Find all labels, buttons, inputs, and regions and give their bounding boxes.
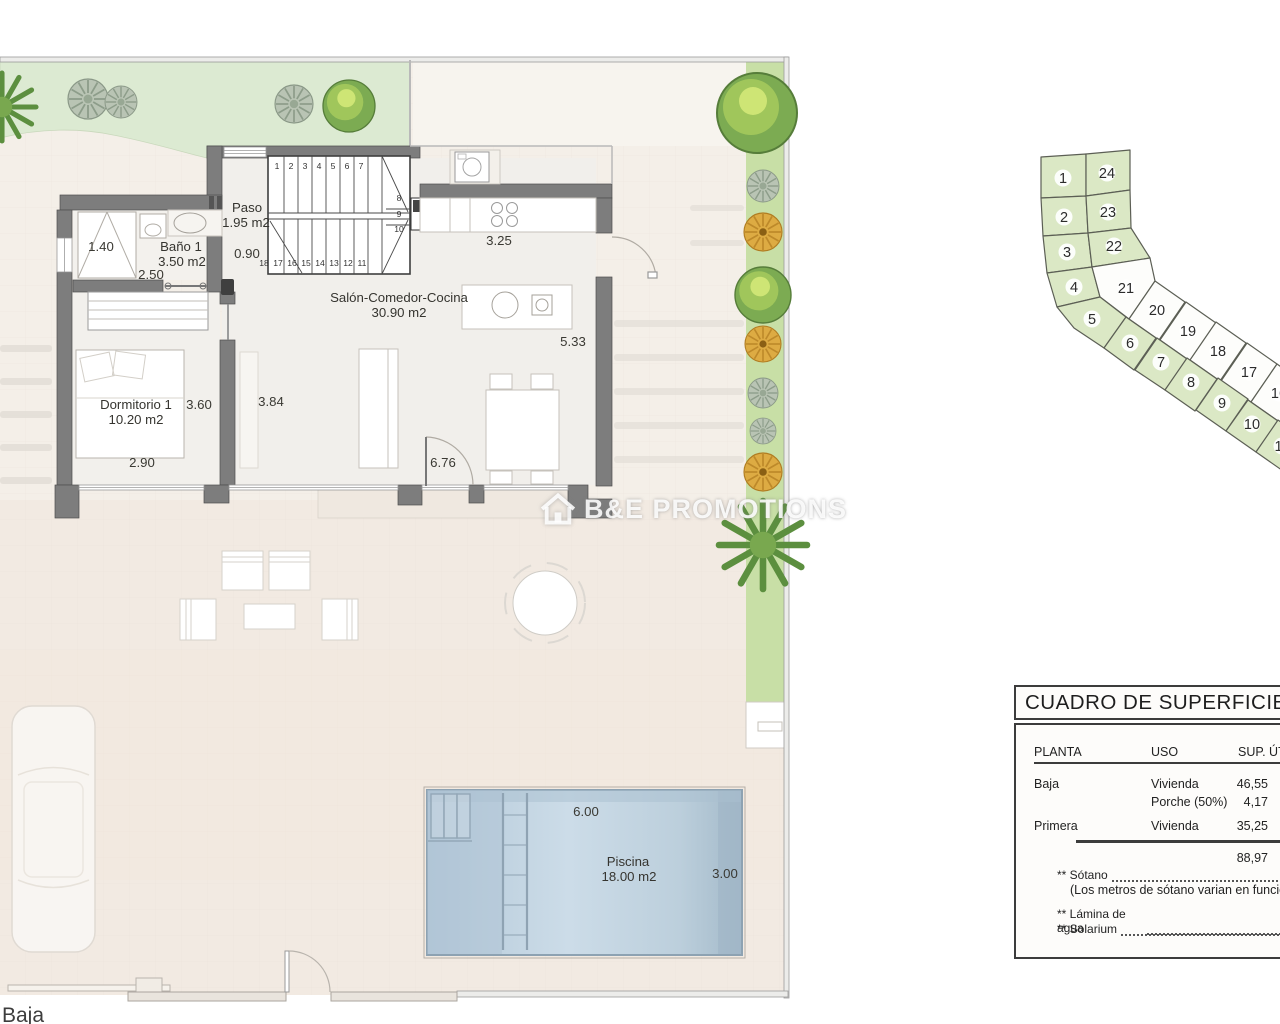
gate-leaf xyxy=(285,951,289,992)
shrub-icon xyxy=(748,378,778,408)
pool-name-label: Piscina xyxy=(607,854,650,869)
shrub-icon xyxy=(68,79,108,119)
stair-step-number: 17 xyxy=(273,258,283,268)
lot-number: 23 xyxy=(1100,205,1116,221)
stair-step-number: 8 xyxy=(397,193,402,203)
lot-number: 24 xyxy=(1099,166,1115,182)
lot-number: 8 xyxy=(1187,375,1195,391)
surface-row: PrimeraVivienda35,25 xyxy=(1016,819,1280,835)
pool-length-dim: 6.00 xyxy=(573,804,599,819)
lot-number: 20 xyxy=(1149,303,1165,319)
tv-sideboard xyxy=(240,352,258,468)
swimming-pool: 6.00 Piscina 18.00 m2 3.00 xyxy=(424,787,745,958)
site-plan-inset: 1242233224215201918171667891011 xyxy=(1041,150,1280,473)
stair-step-number: 13 xyxy=(329,258,339,268)
lot-number: 1 xyxy=(1059,171,1067,187)
stair-step-number: 2 xyxy=(289,161,294,171)
room-area-bano: 3.50 m2 xyxy=(158,254,206,269)
dining-chair xyxy=(490,374,512,389)
row-sup: 4,17 xyxy=(1202,795,1268,809)
row-planta: Primera xyxy=(1034,819,1078,833)
room-label-dormitorio: Dormitorio 1 xyxy=(100,397,172,412)
row-sup: 35,25 xyxy=(1202,819,1268,833)
dim-5-33: 5.33 xyxy=(560,334,586,349)
lot-number: 10 xyxy=(1244,417,1260,433)
tree-icon xyxy=(735,267,791,323)
note-sotano-detail: (Los metros de sótano varian en función … xyxy=(1070,883,1280,897)
stair-step-number: 1 xyxy=(275,161,280,171)
row-uso: Vivienda xyxy=(1151,777,1199,791)
dining-chair xyxy=(490,471,512,484)
lot-number: 21 xyxy=(1118,281,1134,297)
lot-number: 3 xyxy=(1063,245,1071,261)
lot-number: 22 xyxy=(1106,239,1122,255)
dim-3-25: 3.25 xyxy=(486,233,512,248)
dotted-leader xyxy=(1121,923,1280,936)
car-outline xyxy=(12,706,95,952)
toilet-icon xyxy=(140,214,166,238)
house: 123456789101817161514131211 Paso 1.95 m2… xyxy=(55,146,657,518)
row-planta: Baja xyxy=(1034,777,1059,791)
tree-icon xyxy=(717,73,797,153)
surface-row: Porche (50%)4,17 xyxy=(1016,795,1280,811)
stair-step-number: 16 xyxy=(287,258,297,268)
dim-6-76: 6.76 xyxy=(430,455,456,470)
dim-3-84: 3.84 xyxy=(258,394,284,409)
note-solarium: ** Solarium xyxy=(1057,922,1280,936)
tree-icon xyxy=(323,80,375,132)
wardrobe xyxy=(88,292,208,330)
room-label-paso: Paso xyxy=(232,200,262,215)
orange-shrub-icon xyxy=(744,453,782,491)
sofa xyxy=(359,349,398,468)
kitchen-island xyxy=(462,285,572,329)
dotted-leader xyxy=(1112,869,1280,882)
lot-number: 19 xyxy=(1180,324,1196,340)
surface-table-title: CUADRO DE SUPERFICIE xyxy=(1014,685,1280,720)
pool-area-label: 18.00 m2 xyxy=(602,869,657,884)
note-solarium-label: ** Solarium xyxy=(1057,922,1117,936)
dim-3-60: 3.60 xyxy=(186,397,212,412)
room-area-dormitorio: 10.20 m2 xyxy=(109,412,164,427)
pool-steps xyxy=(428,794,472,841)
shrub-icon xyxy=(750,418,776,444)
room-area-paso: 1.95 m2 xyxy=(222,215,270,230)
pool-width-dim: 3.00 xyxy=(712,866,738,881)
col-header-sup: SUP. ÚT xyxy=(1238,745,1280,759)
stair-step-number: 12 xyxy=(343,258,353,268)
total-surface-value: 88,97 xyxy=(1202,851,1268,865)
stair-step-number: 7 xyxy=(359,161,364,171)
kitchen-counter xyxy=(420,198,596,232)
lot-number: 18 xyxy=(1210,344,1226,360)
stair-step-number: 11 xyxy=(358,258,367,268)
room-label-salon: Salón-Comedor-Cocina xyxy=(330,290,468,305)
dim-2-50: 2.50 xyxy=(138,267,164,282)
shrub-icon xyxy=(105,86,137,118)
entry-door-pivot xyxy=(221,279,234,295)
col-header-uso: USO xyxy=(1151,745,1178,759)
lot-number: 11 xyxy=(1274,439,1280,455)
dining-chair xyxy=(531,471,553,484)
washer-icon xyxy=(455,152,489,182)
stair-step-number: 6 xyxy=(345,161,350,171)
row-sup: 46,55 xyxy=(1202,777,1268,791)
stair-step-number: 14 xyxy=(315,258,325,268)
dining-chair xyxy=(531,374,553,389)
stair-step-number: 3 xyxy=(303,161,308,171)
stair-step-number: 5 xyxy=(331,161,336,171)
staircase: 123456789101817161514131211 xyxy=(259,156,410,274)
outdoor-armchair xyxy=(180,599,216,640)
stair-step-number: 18 xyxy=(259,258,269,268)
room-area-salon: 30.90 m2 xyxy=(372,305,427,320)
dining-table xyxy=(486,390,559,470)
orange-shrub-icon xyxy=(745,326,781,362)
surface-row: BajaVivienda46,55 xyxy=(1016,777,1280,793)
floor-plan-page: 6.00 Piscina 18.00 m2 3.00 xyxy=(0,0,1280,1024)
lot-number: 16 xyxy=(1271,386,1280,402)
lot-number: 9 xyxy=(1218,396,1226,412)
dim-0-90: 0.90 xyxy=(234,246,260,261)
stair-step-number: 15 xyxy=(301,258,311,268)
floor-name-label: Baja xyxy=(2,1004,44,1024)
outdoor-armchair xyxy=(322,599,358,640)
lot-number: 7 xyxy=(1157,355,1165,371)
dim-2-90: 2.90 xyxy=(129,455,155,470)
dim-1-40: 1.40 xyxy=(88,239,114,254)
lot-number: 5 xyxy=(1088,312,1096,328)
shrub-icon xyxy=(747,170,779,202)
table-rule-total xyxy=(1076,840,1280,843)
porch-slab xyxy=(318,489,586,518)
col-header-planta: PLANTA xyxy=(1034,745,1082,759)
table-rule xyxy=(1034,762,1280,764)
note-sotano: ** Sótano xyxy=(1057,868,1280,882)
round-dining-table xyxy=(513,571,577,635)
surface-table: PLANTA USO SUP. ÚT BajaVivienda46,55Porc… xyxy=(1014,723,1280,959)
coffee-table xyxy=(244,604,295,629)
orange-shrub-icon xyxy=(744,213,782,251)
row-uso: Vivienda xyxy=(1151,819,1199,833)
note-sotano-label: ** Sótano xyxy=(1057,868,1108,882)
stair-step-number: 10 xyxy=(394,224,404,234)
lot-number: 17 xyxy=(1241,365,1257,381)
lot-number: 6 xyxy=(1126,336,1134,352)
lot-number: 4 xyxy=(1070,280,1078,296)
stair-step-number: 9 xyxy=(397,209,402,219)
stair-step-number: 4 xyxy=(317,161,322,171)
lot-number: 2 xyxy=(1060,210,1068,226)
room-label-bano: Baño 1 xyxy=(160,239,202,254)
shrub-icon xyxy=(275,85,313,123)
